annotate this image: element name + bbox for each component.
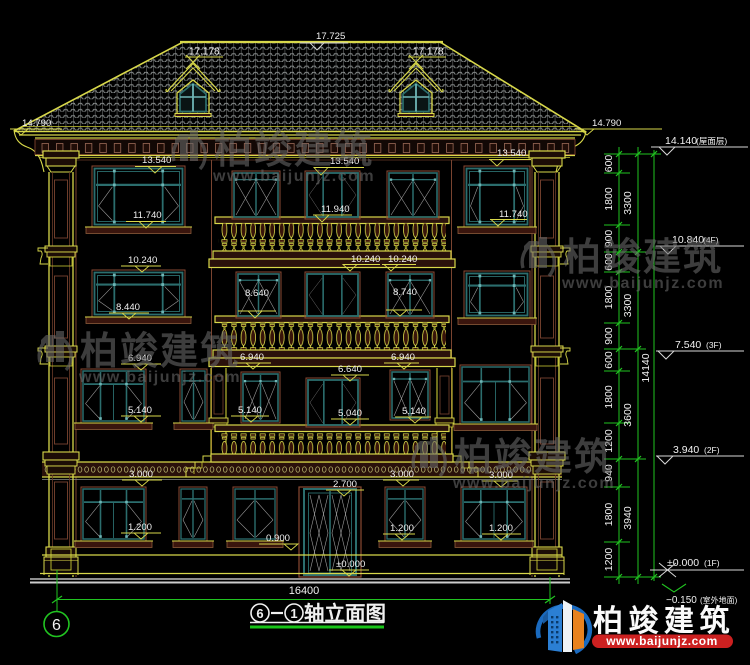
svg-text:8.440: 8.440 — [116, 302, 140, 313]
svg-text:14140: 14140 — [640, 353, 652, 382]
svg-text:1.200: 1.200 — [128, 522, 152, 533]
svg-text:0.900: 0.900 — [266, 533, 290, 544]
svg-text:3.940: 3.940 — [673, 444, 699, 456]
svg-text:7.540: 7.540 — [675, 339, 701, 351]
svg-text:1800: 1800 — [603, 385, 615, 409]
svg-text:3300: 3300 — [622, 294, 634, 318]
svg-text:8.740: 8.740 — [393, 287, 417, 298]
svg-text:6.940: 6.940 — [391, 352, 415, 363]
svg-text:600: 600 — [603, 351, 615, 369]
svg-text:(2F): (2F) — [704, 445, 720, 455]
svg-text:16400: 16400 — [289, 585, 320, 597]
svg-text:1: 1 — [290, 606, 297, 621]
svg-text:柏竣建筑: 柏竣建筑 — [593, 604, 735, 638]
svg-text:柏竣建筑: 柏竣建筑 — [80, 331, 240, 373]
svg-text:柏竣建筑: 柏竣建筑 — [214, 130, 374, 172]
svg-text:www.baijunjz.com: www.baijunjz.com — [452, 475, 615, 492]
svg-text:14.790: 14.790 — [22, 118, 51, 129]
svg-text:900: 900 — [603, 327, 615, 345]
svg-text:6: 6 — [52, 617, 61, 634]
svg-text:10.240: 10.240 — [351, 254, 380, 265]
svg-text:5.040: 5.040 — [338, 408, 362, 419]
svg-text:(室外地面): (室外地面) — [700, 595, 738, 605]
svg-text:1.200: 1.200 — [390, 523, 414, 534]
svg-text:5.140: 5.140 — [402, 406, 426, 417]
svg-text:6: 6 — [256, 606, 263, 621]
svg-text:柏竣建筑: 柏竣建筑 — [563, 237, 723, 279]
svg-text:10.240: 10.240 — [388, 254, 417, 265]
svg-text:10.240: 10.240 — [128, 255, 157, 266]
svg-text:13.540: 13.540 — [497, 148, 526, 159]
svg-text:1200: 1200 — [603, 548, 615, 572]
svg-text:11.740: 11.740 — [133, 210, 162, 221]
svg-text:1800: 1800 — [603, 503, 615, 527]
svg-text:3.000: 3.000 — [129, 469, 153, 480]
svg-text:5.140: 5.140 — [128, 405, 152, 416]
svg-text:www.baijunjz.com: www.baijunjz.com — [212, 168, 375, 185]
svg-text:1.200: 1.200 — [489, 523, 513, 534]
svg-text:(1F): (1F) — [704, 558, 720, 568]
svg-text:8.640: 8.640 — [245, 288, 269, 299]
svg-text:www.baijunjz.com: www.baijunjz.com — [78, 369, 241, 386]
svg-text:17.725: 17.725 — [316, 31, 345, 42]
svg-text:www.baijunjz.com: www.baijunjz.com — [561, 275, 724, 292]
svg-text:11.740: 11.740 — [499, 209, 528, 220]
svg-text:±0.000: ±0.000 — [667, 557, 699, 569]
svg-text:2.700: 2.700 — [333, 479, 357, 490]
svg-text:17.178: 17.178 — [189, 47, 220, 58]
svg-text:13.540: 13.540 — [142, 155, 171, 166]
svg-text:3300: 3300 — [622, 191, 634, 215]
svg-text:6.640: 6.640 — [338, 364, 362, 375]
svg-text:www.baijunjz.com: www.baijunjz.com — [605, 634, 718, 648]
svg-text:14.790: 14.790 — [592, 118, 621, 129]
svg-text:1800: 1800 — [603, 187, 615, 211]
svg-text:14.140: 14.140 — [665, 135, 697, 147]
svg-text:5.140: 5.140 — [238, 405, 262, 416]
svg-text:3.000: 3.000 — [390, 469, 414, 480]
svg-text:(3F): (3F) — [706, 340, 722, 350]
svg-text:3940: 3940 — [622, 506, 634, 530]
svg-text:17.178: 17.178 — [413, 47, 444, 58]
svg-text:±0.000: ±0.000 — [336, 559, 365, 570]
svg-text:600: 600 — [603, 155, 615, 173]
svg-text:柏竣建筑: 柏竣建筑 — [454, 437, 614, 479]
svg-text:(屋面层): (屋面层) — [696, 136, 727, 146]
svg-text:3600: 3600 — [622, 403, 634, 427]
svg-text:11.940: 11.940 — [321, 204, 350, 215]
svg-text:6.940: 6.940 — [240, 352, 264, 363]
